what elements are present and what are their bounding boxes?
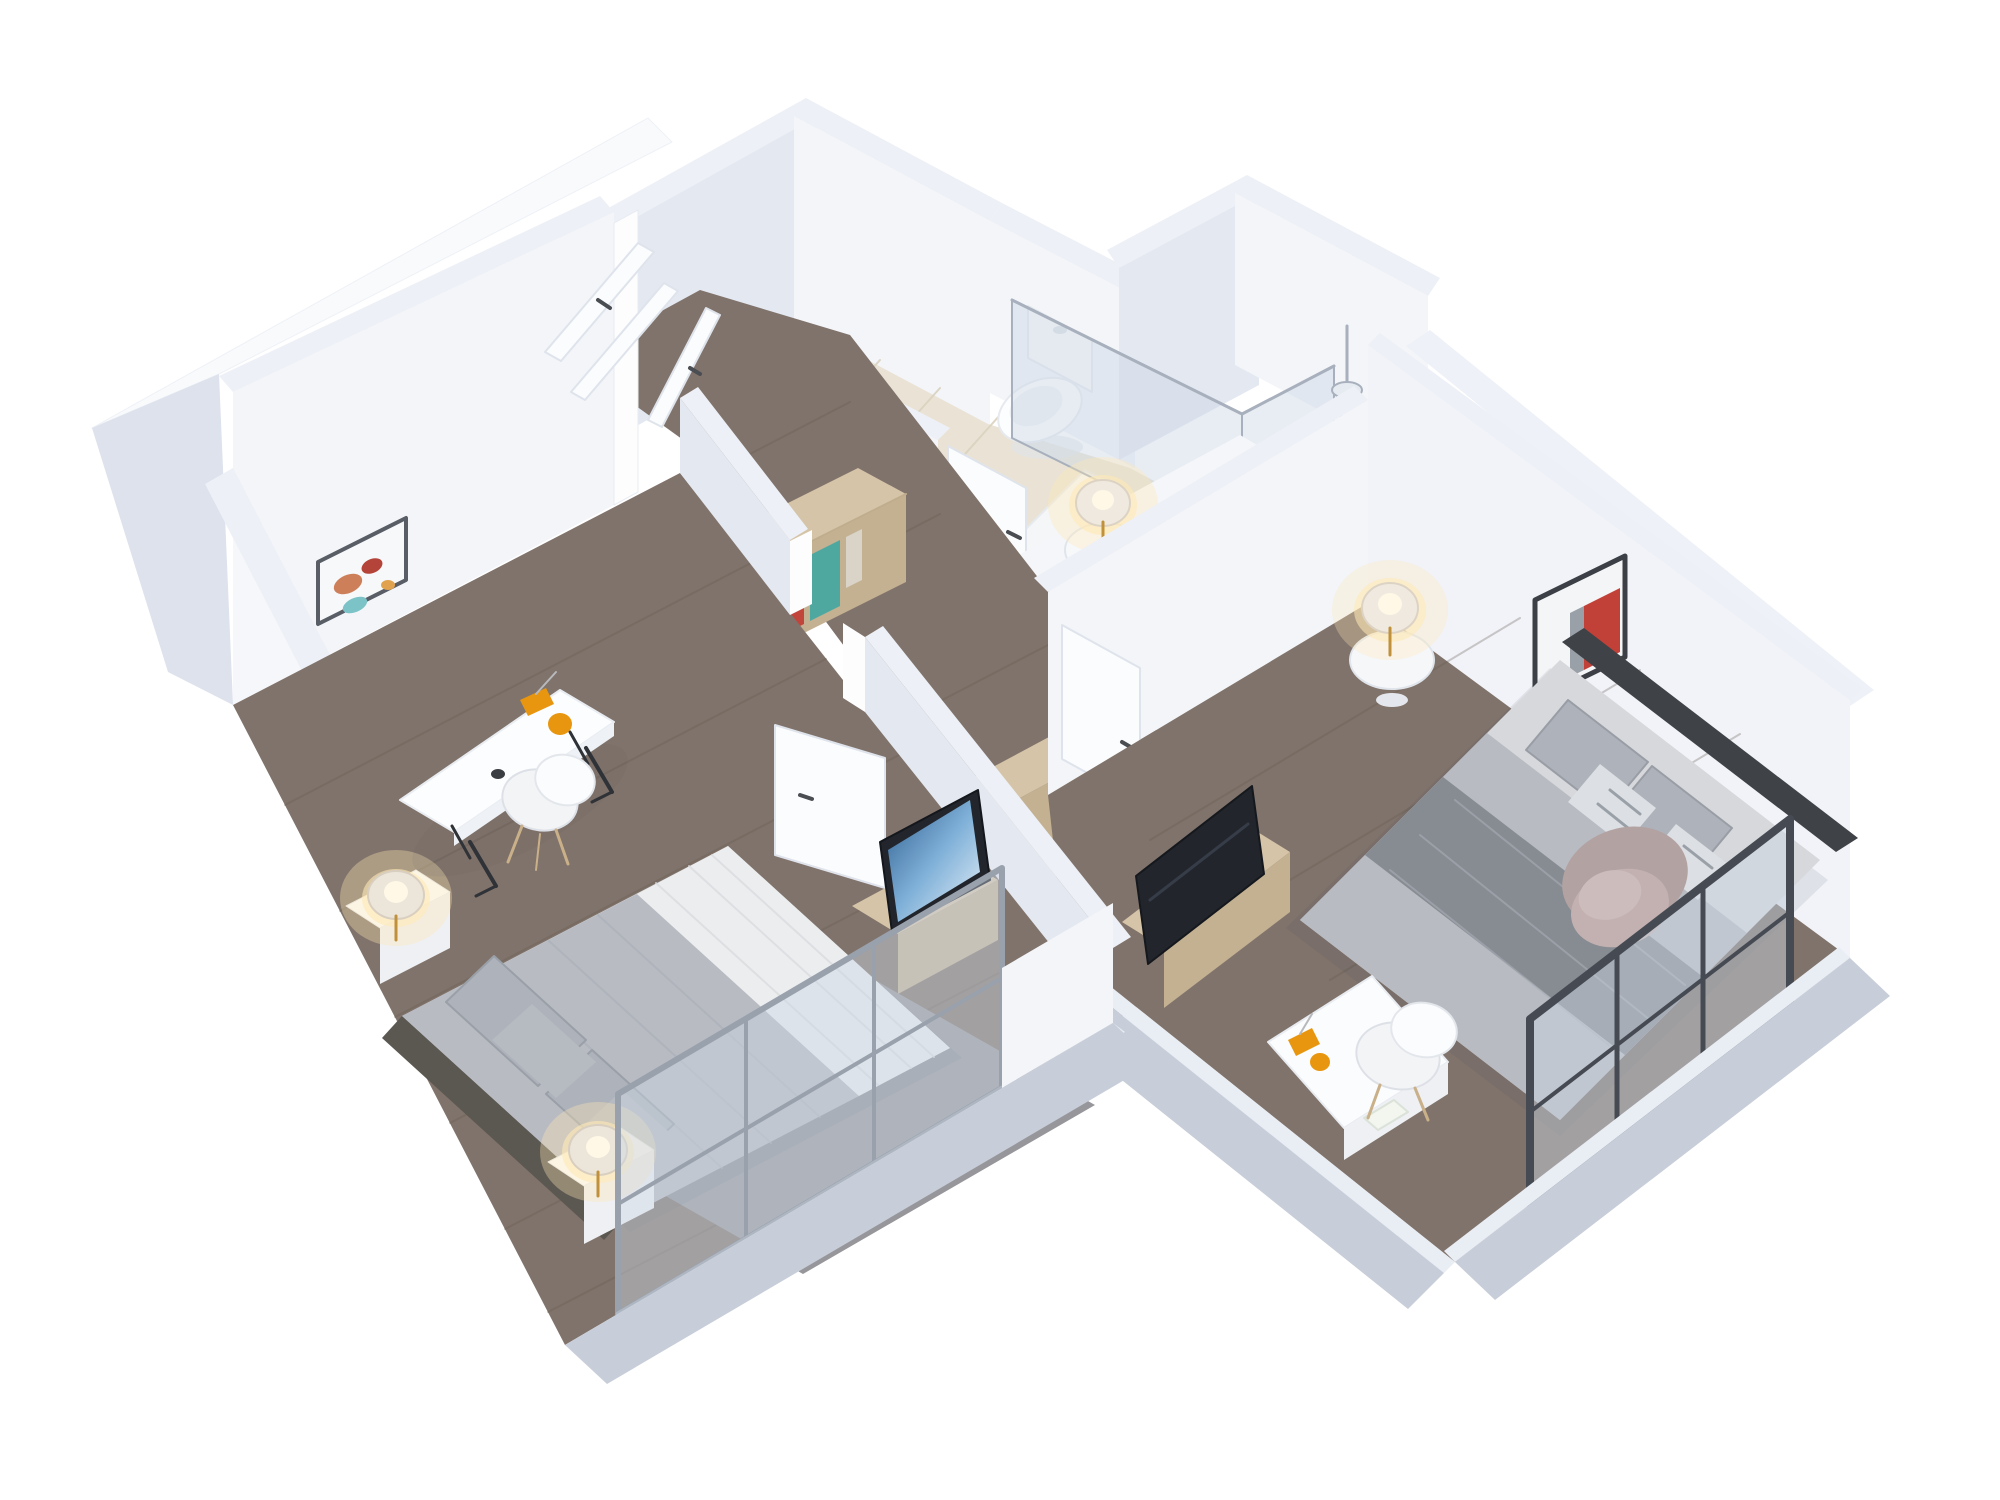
rbedroom-desk-lamp-ball: [1310, 1053, 1330, 1071]
lbedroom-lamp-1-bulb: [384, 881, 408, 903]
lbedroom-doorway-jamb-a: [790, 530, 812, 615]
lbedroom-doorway-jamb-b: [843, 623, 865, 712]
floorplan-render-stage: [0, 0, 2000, 1500]
rbedroom-table-base: [1376, 693, 1408, 707]
lbedroom-pen-cup: [491, 769, 505, 779]
floorplan-render-canvas: [0, 0, 2000, 1500]
lbedroom-desk-lamp-ball: [548, 713, 572, 735]
lbedroom-art-blob-amber: [381, 580, 395, 590]
lbedroom-lamp-2-bulb: [586, 1136, 610, 1158]
rbedroom-lamp-bulb: [1378, 593, 1402, 615]
book-white: [846, 529, 862, 588]
recess-lamp-bulb: [1092, 490, 1114, 510]
